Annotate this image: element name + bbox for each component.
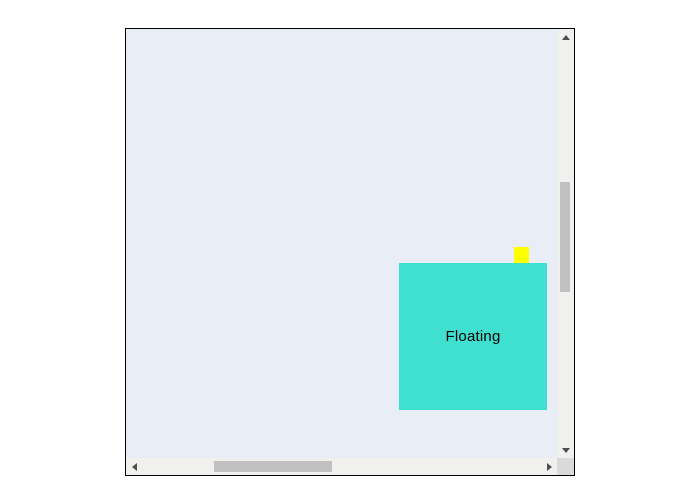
triangle-down-icon	[562, 448, 570, 453]
scroll-left-button[interactable]	[126, 458, 142, 475]
horizontal-scrollbar-track[interactable]	[126, 458, 557, 475]
scroll-right-button[interactable]	[541, 458, 557, 475]
horizontal-scrollbar-thumb[interactable]	[214, 461, 332, 472]
scroll-viewport[interactable]: Floating	[126, 29, 557, 458]
triangle-right-icon	[547, 463, 552, 471]
scroll-container: Floating	[125, 28, 575, 476]
triangle-up-icon	[562, 35, 570, 40]
scrollbar-corner	[557, 458, 574, 475]
scroll-down-button[interactable]	[557, 442, 574, 458]
floating-panel-label: Floating	[446, 328, 501, 345]
floating-panel-handle[interactable]	[514, 247, 529, 263]
floating-panel[interactable]: Floating	[399, 263, 547, 410]
triangle-left-icon	[132, 463, 137, 471]
vertical-scrollbar-track[interactable]	[557, 29, 574, 458]
vertical-scrollbar-thumb[interactable]	[560, 182, 570, 292]
scroll-up-button[interactable]	[557, 29, 574, 45]
